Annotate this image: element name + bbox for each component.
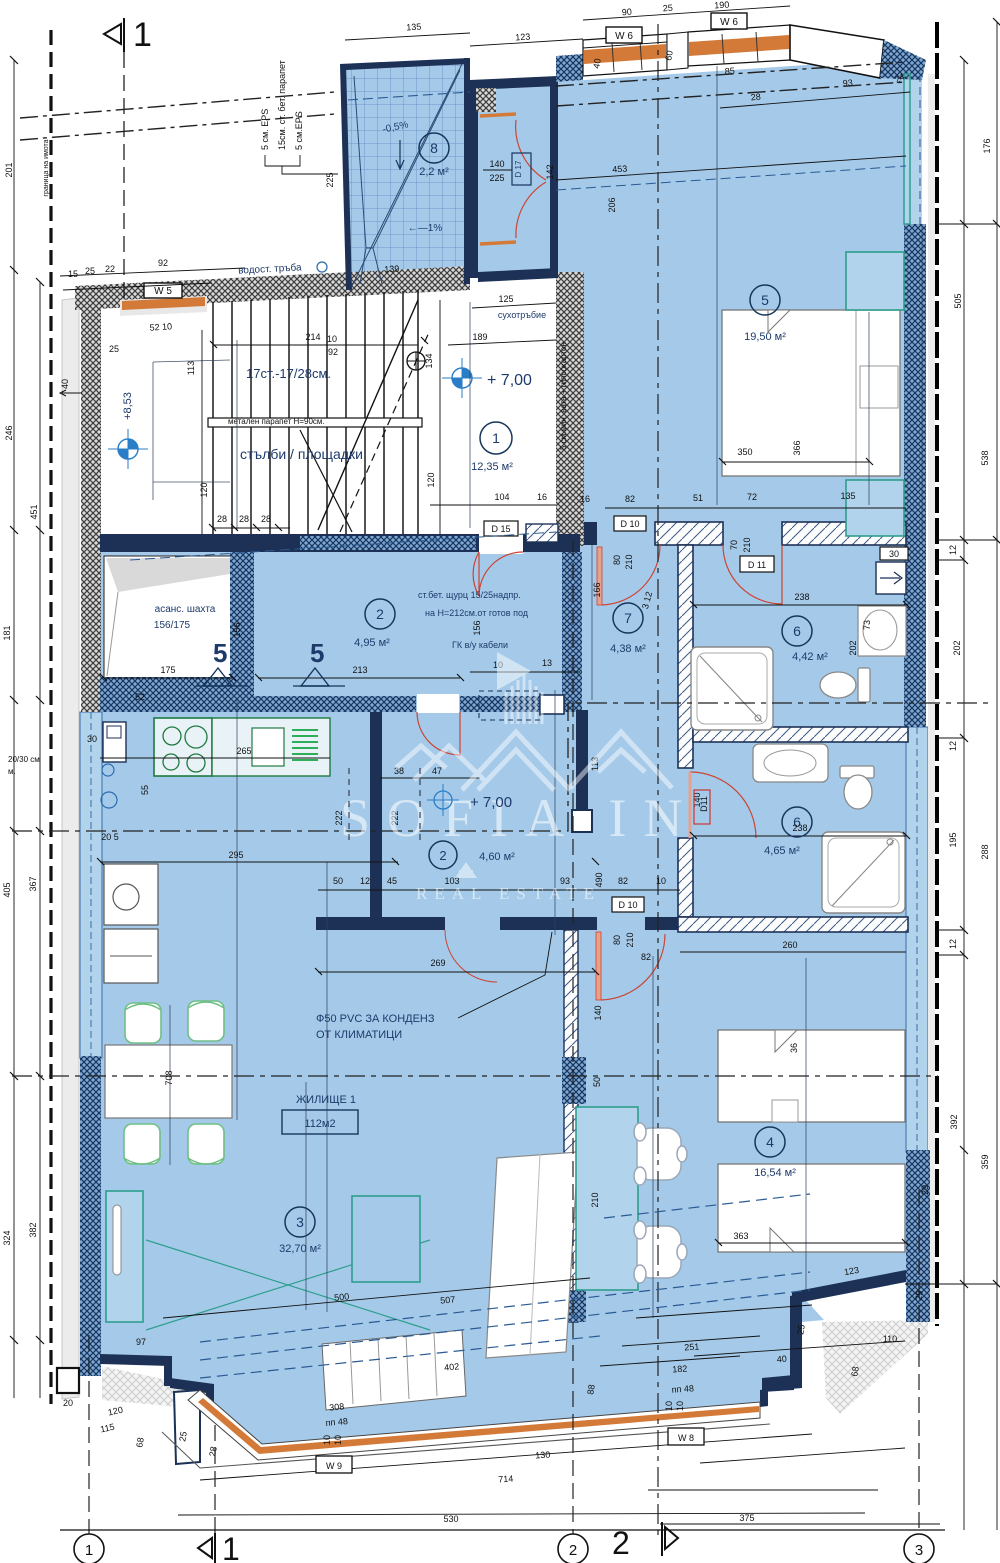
svg-text:288: 288	[980, 844, 990, 859]
svg-text:W 6: W 6	[615, 31, 633, 42]
svg-text:530: 530	[443, 1514, 458, 1524]
svg-text:135: 135	[406, 21, 422, 32]
svg-text:20 5: 20 5	[101, 832, 119, 842]
svg-text:5: 5	[761, 292, 769, 308]
svg-text:246: 246	[4, 425, 14, 440]
svg-text:214: 214	[305, 332, 320, 342]
svg-text:W 5: W 5	[154, 286, 172, 297]
svg-text:55: 55	[140, 785, 150, 795]
svg-text:375: 375	[739, 1513, 754, 1523]
svg-text:40: 40	[60, 379, 70, 389]
svg-text:W 8: W 8	[678, 1433, 694, 1443]
svg-text:5: 5	[310, 638, 324, 668]
svg-text:6: 6	[793, 623, 801, 639]
svg-text:140: 140	[593, 1005, 603, 1020]
svg-text:505: 505	[953, 293, 963, 308]
svg-text:120: 120	[426, 472, 436, 487]
svg-text:ст.бет. щурц 15/25надпр.: ст.бет. щурц 15/25надпр.	[418, 590, 521, 600]
svg-text:40: 40	[776, 1354, 787, 1365]
svg-text:60: 60	[663, 50, 675, 62]
svg-text:251: 251	[684, 1341, 700, 1352]
svg-text:15: 15	[68, 269, 78, 279]
svg-text:382: 382	[28, 1222, 38, 1237]
svg-text:1: 1	[85, 1542, 93, 1559]
svg-text:260: 260	[782, 940, 797, 950]
svg-text:REAL ESTATE: REAL ESTATE	[416, 884, 601, 903]
svg-text:SOFIA IN: SOFIA IN	[340, 788, 700, 848]
svg-text:181: 181	[2, 625, 12, 640]
svg-text:125: 125	[498, 294, 513, 304]
svg-text:142: 142	[545, 164, 555, 179]
svg-text:190: 190	[714, 0, 730, 11]
svg-text:29: 29	[920, 1185, 930, 1195]
svg-text:47: 47	[432, 766, 442, 776]
svg-text:25: 25	[662, 3, 673, 14]
svg-text:50: 50	[333, 876, 343, 886]
svg-text:4,42 м²: 4,42 м²	[792, 651, 828, 663]
svg-text:2,2 м²: 2,2 м²	[419, 166, 449, 178]
svg-text:+ 7,00: + 7,00	[470, 794, 512, 811]
svg-text:52 10: 52 10	[149, 321, 172, 333]
svg-text:25: 25	[85, 266, 95, 276]
svg-text:D 15: D 15	[491, 524, 510, 534]
svg-text:140: 140	[489, 159, 504, 169]
svg-text:D 17: D 17	[514, 160, 523, 177]
svg-text:2: 2	[439, 848, 446, 863]
svg-text:25: 25	[109, 344, 119, 354]
svg-text:10: 10	[327, 334, 337, 344]
svg-text:112м2: 112м2	[304, 1118, 335, 1130]
svg-text:50: 50	[592, 1077, 602, 1087]
svg-text:12: 12	[948, 741, 958, 751]
svg-text:80: 80	[612, 935, 622, 945]
svg-text:90: 90	[621, 7, 632, 18]
svg-text:пп 48: пп 48	[671, 1383, 694, 1395]
svg-text:538: 538	[980, 450, 990, 465]
svg-text:10: 10	[322, 1435, 332, 1445]
svg-text:359: 359	[980, 1154, 990, 1169]
svg-text:10: 10	[664, 1401, 674, 1411]
svg-text:175: 175	[160, 665, 175, 675]
svg-text:195: 195	[948, 832, 958, 847]
svg-text:13: 13	[542, 658, 552, 668]
svg-text:20: 20	[63, 1398, 73, 1408]
svg-text:2: 2	[376, 606, 384, 622]
svg-text:73: 73	[862, 620, 872, 630]
svg-text:210: 210	[742, 537, 752, 552]
svg-text:15см. ст. бет. парапет: 15см. ст. бет. парапет	[277, 60, 287, 150]
svg-text:Ф50 PVC ЗА КОНДЕНЗ: Ф50 PVC ЗА КОНДЕНЗ	[316, 1013, 435, 1025]
svg-text:210: 210	[625, 932, 635, 947]
svg-text:225: 225	[489, 173, 504, 183]
svg-text:17ст.-17/28см.: 17ст.-17/28см.	[246, 366, 331, 381]
svg-text:265: 265	[236, 746, 251, 756]
svg-text:1: 1	[133, 16, 152, 54]
svg-text:7: 7	[624, 610, 632, 626]
svg-text:507: 507	[440, 1294, 456, 1305]
svg-text:120: 120	[199, 482, 209, 497]
svg-text:28: 28	[207, 1446, 219, 1458]
svg-text:25: 25	[795, 1324, 807, 1336]
svg-text:92: 92	[158, 258, 168, 268]
svg-text:134: 134	[424, 353, 434, 368]
svg-text:пп 48: пп 48	[325, 1416, 348, 1428]
svg-text:28: 28	[217, 514, 227, 524]
svg-text:3: 3	[915, 1542, 923, 1559]
svg-text:156/175: 156/175	[154, 620, 191, 631]
svg-text:238: 238	[792, 823, 807, 833]
svg-text:+8,53: +8,53	[122, 392, 134, 420]
svg-text:W 9: W 9	[326, 1461, 342, 1471]
svg-text:4,60 м²: 4,60 м²	[479, 851, 515, 863]
svg-text:363: 363	[733, 1231, 748, 1241]
svg-text:D 10: D 10	[618, 900, 637, 910]
svg-text:451: 451	[29, 504, 39, 519]
svg-text:45: 45	[387, 876, 397, 886]
svg-text:8: 8	[430, 140, 438, 156]
svg-text:156: 156	[232, 622, 242, 637]
svg-text:714: 714	[498, 1473, 514, 1484]
svg-text:156: 156	[472, 620, 482, 635]
svg-text:166: 166	[592, 582, 602, 597]
svg-text:28: 28	[239, 514, 249, 524]
svg-text:708: 708	[164, 1070, 174, 1085]
svg-text:2: 2	[569, 1542, 577, 1559]
svg-text:4: 4	[766, 1134, 774, 1150]
svg-text:16,54 м²: 16,54 м²	[754, 1167, 796, 1179]
svg-text:граница на имота: граница на имота	[43, 139, 50, 196]
svg-text:25: 25	[177, 1431, 189, 1443]
svg-text:206: 206	[607, 197, 617, 212]
svg-text:4,95 м²: 4,95 м²	[354, 637, 390, 649]
svg-text:←—1%: ←—1%	[408, 223, 443, 234]
svg-text:82: 82	[618, 876, 628, 886]
svg-text:10: 10	[333, 1435, 343, 1445]
svg-text:110: 110	[883, 1334, 897, 1344]
svg-text:ГК в/у кабели: ГК в/у кабели	[452, 640, 508, 650]
svg-text:30: 30	[889, 549, 899, 559]
svg-text:W 6: W 6	[720, 17, 738, 28]
svg-text:82: 82	[625, 494, 635, 504]
svg-text:176: 176	[982, 138, 992, 153]
svg-text:210: 210	[624, 554, 634, 569]
svg-text:453: 453	[612, 163, 628, 174]
svg-text:22: 22	[105, 264, 115, 274]
svg-text:68: 68	[849, 1366, 861, 1378]
svg-text:82: 82	[641, 952, 651, 962]
svg-text:ОТ КЛИМАТИЦИ: ОТ КЛИМАТИЦИ	[316, 1029, 402, 1041]
svg-text:стълби / площадки: стълби / площадки	[240, 446, 363, 462]
svg-text:88: 88	[585, 1384, 597, 1396]
svg-text:202: 202	[952, 640, 962, 655]
svg-text:5 см.мин. вата + гипсокартон: 5 см.мин. вата + гипсокартон	[559, 342, 568, 450]
svg-text:метален парапет Н=90см.: метален парапет Н=90см.	[228, 417, 325, 426]
svg-text:392: 392	[949, 1114, 959, 1129]
svg-text:70: 70	[729, 540, 739, 550]
svg-text:12: 12	[948, 939, 958, 949]
svg-text:324: 324	[2, 1230, 12, 1245]
svg-text:402: 402	[444, 1361, 460, 1373]
svg-text:4,38 м²: 4,38 м²	[610, 643, 646, 655]
svg-text:113: 113	[186, 361, 196, 375]
svg-text:68: 68	[134, 1437, 146, 1449]
svg-text:366: 366	[792, 440, 802, 455]
svg-text:269: 269	[430, 958, 445, 968]
svg-text:350: 350	[737, 447, 752, 457]
svg-text:12: 12	[360, 876, 370, 886]
svg-text:м.: м.	[8, 767, 16, 776]
svg-text:16: 16	[537, 492, 547, 502]
svg-text:92: 92	[328, 347, 338, 357]
svg-text:асанс. шахта: асанс. шахта	[155, 604, 216, 615]
svg-text:D 10: D 10	[620, 519, 639, 529]
svg-text:139: 139	[384, 263, 400, 274]
svg-text:36: 36	[789, 1043, 799, 1053]
svg-text:5: 5	[213, 638, 227, 668]
svg-text:130: 130	[535, 1449, 551, 1460]
svg-text:4,65 м²: 4,65 м²	[764, 845, 800, 857]
svg-text:сухотръбие: сухотръбие	[498, 310, 546, 320]
svg-text:189: 189	[472, 332, 487, 342]
svg-text:28: 28	[261, 514, 271, 524]
svg-text:12,35 м²: 12,35 м²	[471, 461, 513, 473]
svg-text:32,70 м²: 32,70 м²	[279, 1243, 321, 1255]
svg-text:213: 213	[352, 665, 367, 675]
svg-text:3: 3	[296, 1214, 304, 1230]
svg-text:16: 16	[580, 494, 590, 504]
svg-text:19,50 м²: 19,50 м²	[744, 331, 786, 343]
svg-text:72: 72	[747, 492, 757, 502]
svg-text:20/30 см: 20/30 см	[8, 755, 40, 764]
svg-text:+ 7,00: + 7,00	[487, 372, 532, 389]
svg-text:367: 367	[28, 876, 38, 891]
svg-text:405: 405	[2, 882, 12, 897]
svg-text:500: 500	[334, 1291, 350, 1303]
svg-text:10: 10	[675, 1401, 685, 1411]
svg-text:1: 1	[222, 1531, 240, 1563]
svg-text:30: 30	[87, 734, 97, 744]
svg-text:5 см. EPS: 5 см. EPS	[260, 109, 270, 150]
svg-text:225: 225	[325, 172, 335, 187]
svg-text:238: 238	[794, 592, 809, 602]
svg-text:308: 308	[329, 1401, 345, 1412]
svg-text:295: 295	[228, 850, 243, 860]
svg-text:123: 123	[515, 31, 531, 42]
svg-text:135: 135	[840, 491, 855, 501]
svg-text:D 11: D 11	[748, 560, 766, 570]
svg-text:ЖИЛИЩЕ 1: ЖИЛИЩЕ 1	[296, 1094, 356, 1106]
svg-text:40: 40	[591, 58, 603, 70]
svg-text:12: 12	[948, 545, 958, 555]
svg-text:1: 1	[492, 430, 500, 446]
svg-text:182: 182	[672, 1363, 688, 1374]
svg-text:202: 202	[848, 640, 858, 655]
svg-text:D11: D11	[699, 796, 709, 812]
svg-text:52: 52	[135, 692, 145, 702]
svg-text:104: 104	[494, 492, 509, 502]
svg-text:2: 2	[612, 1525, 630, 1561]
svg-text:на Н=212см.от готов под: на Н=212см.от готов под	[425, 608, 529, 618]
svg-text:201: 201	[4, 162, 14, 177]
svg-text:51: 51	[693, 493, 703, 503]
svg-text:80: 80	[612, 555, 622, 565]
svg-text:210: 210	[590, 1192, 600, 1207]
svg-text:97: 97	[136, 1337, 146, 1347]
